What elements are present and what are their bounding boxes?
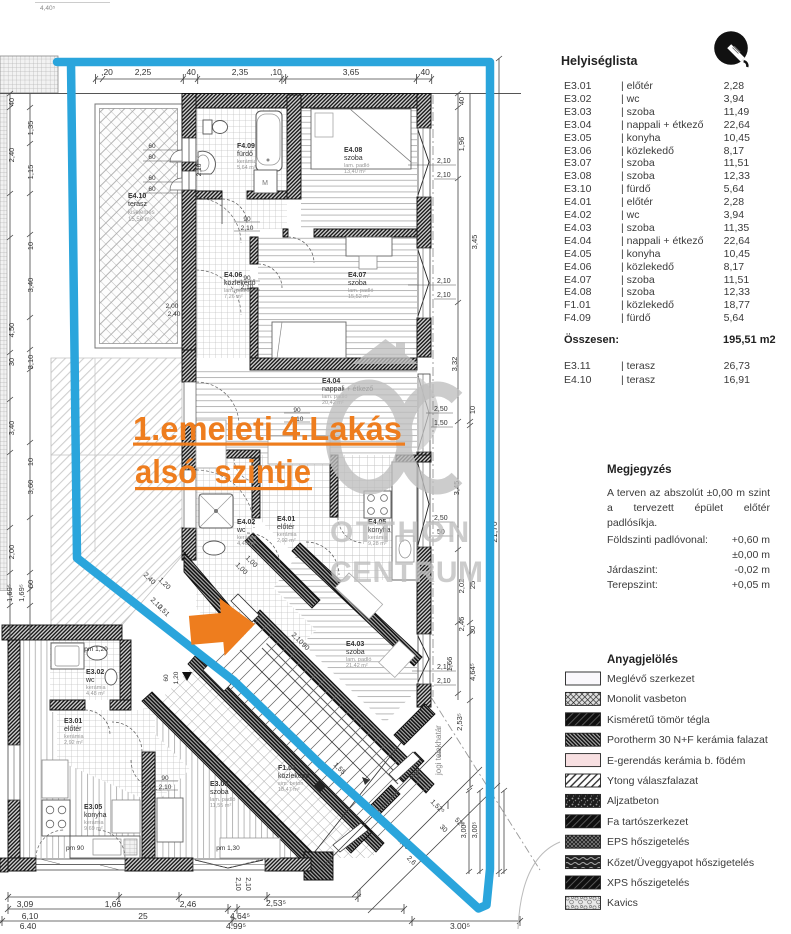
svg-text:E4.08: E4.08 xyxy=(344,147,362,154)
svg-text:2,92 m²: 2,92 m² xyxy=(64,740,83,746)
svg-text:1,35: 1,35 xyxy=(26,121,35,136)
svg-text:21,42 m²: 21,42 m² xyxy=(346,663,368,669)
svg-text:wc: wc xyxy=(236,527,246,534)
svg-text:pm 1,30: pm 1,30 xyxy=(216,845,240,852)
svg-text:E3.03: E3.03 xyxy=(210,781,228,788)
svg-text:2,00: 2,00 xyxy=(7,545,16,560)
svg-text:E4.03: E4.03 xyxy=(346,641,364,648)
svg-text:2,6: 2,6 xyxy=(405,855,417,867)
svg-text:2,10: 2,10 xyxy=(234,877,241,891)
svg-text:60: 60 xyxy=(148,154,156,161)
svg-text:fürdő: fürdő xyxy=(237,151,253,158)
svg-text:2,10: 2,10 xyxy=(196,163,203,176)
svg-text:9,69 m²: 9,69 m² xyxy=(84,826,103,832)
svg-text:30: 30 xyxy=(438,824,449,835)
svg-text:30: 30 xyxy=(7,358,16,366)
svg-text:4,50: 4,50 xyxy=(7,323,16,338)
svg-text:13,40 m²: 13,40 m² xyxy=(344,169,366,175)
svg-text:3,60: 3,60 xyxy=(26,480,35,495)
svg-text:1,52⁵: 1,52⁵ xyxy=(429,799,446,816)
svg-text:60: 60 xyxy=(148,186,156,193)
svg-text:2,35: 2,35 xyxy=(232,67,249,77)
svg-text:2,10: 2,10 xyxy=(437,158,451,165)
svg-text:2,00: 2,00 xyxy=(166,303,179,310)
svg-text:kiselemes: kiselemes xyxy=(128,210,155,216)
svg-text:2,10: 2,10 xyxy=(437,172,451,179)
svg-text:6,40: 6,40 xyxy=(20,921,37,929)
svg-text:2,10: 2,10 xyxy=(437,664,451,671)
svg-text:15,58 m²: 15,58 m² xyxy=(128,217,152,223)
svg-text:,40: ,40 xyxy=(418,67,430,77)
svg-text:E4.10: E4.10 xyxy=(128,193,146,200)
svg-text:3,10: 3,10 xyxy=(26,355,35,370)
svg-text:2,53⁵: 2,53⁵ xyxy=(455,713,464,731)
svg-text:E3.01: E3.01 xyxy=(64,718,82,725)
svg-text:E4.01: E4.01 xyxy=(277,516,295,523)
svg-text:4,64⁵: 4,64⁵ xyxy=(468,663,477,681)
svg-text:1.emeleti 4.Lakás: 1.emeleti 4.Lakás xyxy=(133,410,402,447)
svg-text:5,64 m²: 5,64 m² xyxy=(237,165,256,171)
svg-text:60: 60 xyxy=(148,175,156,182)
svg-text:szoba: szoba xyxy=(344,155,363,162)
svg-text:,20: ,20 xyxy=(101,67,113,77)
svg-text:10: 10 xyxy=(26,458,35,466)
svg-text:jogi telekhatár: jogi telekhatár xyxy=(434,725,443,776)
svg-text:2,10: 2,10 xyxy=(244,877,251,891)
svg-text:60: 60 xyxy=(163,674,170,682)
svg-text:OTTHON: OTTHON xyxy=(330,516,472,549)
svg-text:1,66: 1,66 xyxy=(105,899,122,909)
svg-text:CENTRUM: CENTRUM xyxy=(330,556,484,589)
svg-text:M: M xyxy=(262,180,268,187)
svg-text:40: 40 xyxy=(457,97,466,105)
svg-text:3,32: 3,32 xyxy=(450,357,459,372)
svg-text:2,10: 2,10 xyxy=(437,278,451,285)
svg-text:4,99⁵: 4,99⁵ xyxy=(226,921,246,929)
svg-text:2,53⁵: 2,53⁵ xyxy=(266,898,286,908)
svg-text:2,25: 2,25 xyxy=(135,67,152,77)
svg-text:3,40: 3,40 xyxy=(7,421,16,436)
svg-text:4,64⁵: 4,64⁵ xyxy=(230,911,250,921)
svg-text:szoba: szoba xyxy=(348,280,367,287)
svg-text:1,96: 1,96 xyxy=(457,137,466,152)
svg-text:3,09: 3,09 xyxy=(17,899,34,909)
svg-text:10: 10 xyxy=(468,406,477,414)
svg-text:E4.07: E4.07 xyxy=(348,272,366,279)
svg-text:2,40: 2,40 xyxy=(7,148,16,163)
svg-text:,10: ,10 xyxy=(270,67,282,77)
svg-text:terasz: terasz xyxy=(128,201,148,208)
svg-text:E3.02: E3.02 xyxy=(86,669,104,676)
svg-text:4,48 m²: 4,48 m² xyxy=(237,541,256,547)
svg-text:E4.06: E4.06 xyxy=(224,272,242,279)
svg-text:E4.02: E4.02 xyxy=(237,519,255,526)
svg-text:E4.04: E4.04 xyxy=(322,378,340,385)
svg-text:E3.05: E3.05 xyxy=(84,804,102,811)
svg-text:1,69⁵: 1,69⁵ xyxy=(17,584,26,602)
svg-text:1,50: 1,50 xyxy=(434,420,448,427)
svg-text:2,46: 2,46 xyxy=(180,899,197,909)
svg-text:2,92 m²: 2,92 m² xyxy=(277,538,296,544)
svg-text:konyha: konyha xyxy=(84,812,107,819)
svg-text:2,50: 2,50 xyxy=(434,406,448,413)
svg-text:15,52 m²: 15,52 m² xyxy=(348,294,370,300)
svg-text:11,55 m²: 11,55 m² xyxy=(210,803,231,809)
svg-text:1,20: 1,20 xyxy=(173,671,180,684)
svg-text:alsó szintje: alsó szintje xyxy=(135,453,311,490)
svg-text:1,69⁵: 1,69⁵ xyxy=(5,584,14,602)
svg-text:60: 60 xyxy=(26,580,35,588)
svg-text:60: 60 xyxy=(148,143,156,150)
svg-text:18,47 m²: 18,47 m² xyxy=(278,787,300,793)
svg-text:6,10: 6,10 xyxy=(22,911,39,921)
svg-text:4,40⁵: 4,40⁵ xyxy=(40,5,56,12)
svg-text:3,40: 3,40 xyxy=(26,278,35,293)
svg-text:2,40: 2,40 xyxy=(168,311,181,318)
svg-text:3,00⁵: 3,00⁵ xyxy=(472,822,479,839)
svg-text:,40: ,40 xyxy=(184,67,196,77)
svg-text:2,10: 2,10 xyxy=(437,292,451,299)
svg-text:3,00⁵: 3,00⁵ xyxy=(450,921,470,929)
svg-text:szoba: szoba xyxy=(346,649,365,656)
svg-text:közlekedő: közlekedő xyxy=(278,773,310,780)
svg-text:szoba: szoba xyxy=(210,789,229,796)
svg-text:előtér: előtér xyxy=(64,726,82,733)
svg-text:előtér: előtér xyxy=(277,524,295,531)
svg-text:30: 30 xyxy=(468,626,477,634)
svg-text:2,10: 2,10 xyxy=(437,678,451,685)
svg-text:3,65: 3,65 xyxy=(343,67,360,77)
svg-text:pm 90: pm 90 xyxy=(66,845,84,852)
svg-text:4,48 m²: 4,48 m² xyxy=(86,691,105,697)
svg-text:2,46: 2,46 xyxy=(457,617,466,632)
svg-text:F4.09: F4.09 xyxy=(237,143,255,150)
svg-text:wc: wc xyxy=(85,677,95,684)
svg-text:1,15: 1,15 xyxy=(26,165,35,180)
svg-text:10: 10 xyxy=(26,242,35,250)
svg-text:40: 40 xyxy=(7,98,16,106)
svg-text:1,20: 1,20 xyxy=(157,577,172,592)
svg-text:3,45: 3,45 xyxy=(470,235,479,250)
svg-text:F1.01: F1.01 xyxy=(278,765,296,772)
svg-text:7,26 m²: 7,26 m² xyxy=(224,294,243,300)
svg-text:pm 1,20: pm 1,20 xyxy=(84,646,108,653)
svg-text:25: 25 xyxy=(138,911,148,921)
